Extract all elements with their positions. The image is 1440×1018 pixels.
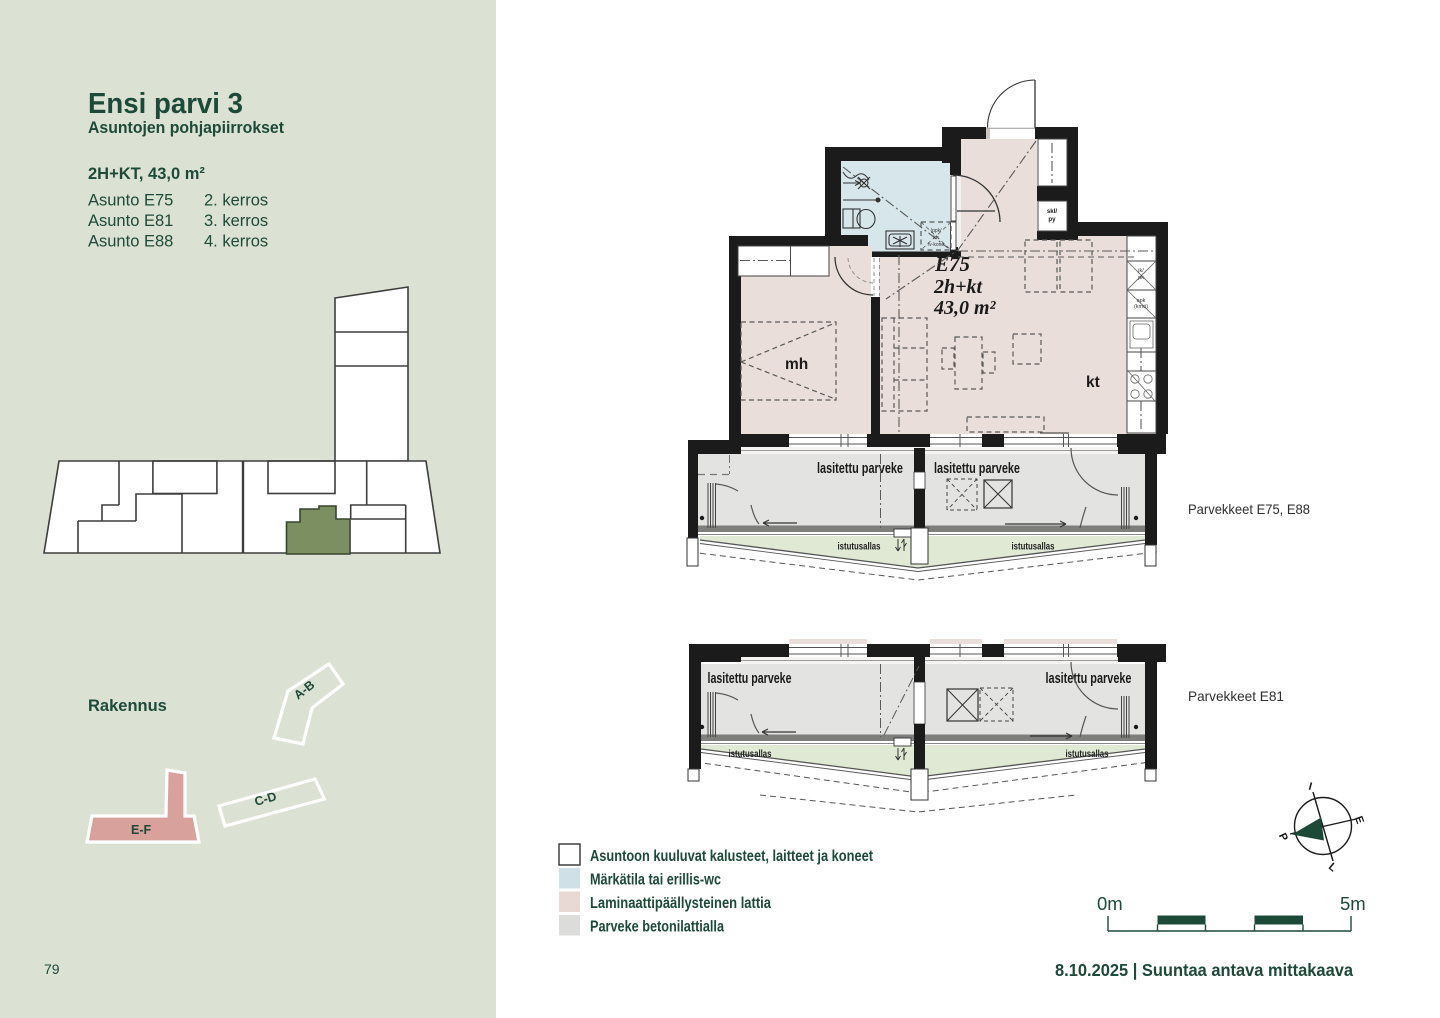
svg-text:istutusallas: istutusallas bbox=[1066, 749, 1109, 760]
svg-text:79: 79 bbox=[44, 961, 60, 977]
svg-text:(ppk/: (ppk/ bbox=[930, 228, 942, 234]
svg-text:kt: kt bbox=[1086, 374, 1100, 391]
svg-text:3. kerros: 3. kerros bbox=[204, 212, 268, 230]
svg-text:lasitettu parveke: lasitettu parveke bbox=[817, 461, 903, 477]
svg-text:Asunto E88: Asunto E88 bbox=[88, 233, 173, 251]
svg-text:0m: 0m bbox=[1097, 893, 1123, 914]
svg-text:py: py bbox=[1048, 216, 1056, 223]
svg-text:43,0 m²: 43,0 m² bbox=[933, 297, 997, 319]
svg-text:istutusallas: istutusallas bbox=[838, 542, 881, 553]
svg-text:E-F: E-F bbox=[131, 823, 152, 837]
svg-text:lasitettu parveke: lasitettu parveke bbox=[708, 671, 792, 687]
svg-text:Asuntojen pohjapiirrokset: Asuntojen pohjapiirrokset bbox=[88, 119, 284, 137]
svg-text:Asunto E81: Asunto E81 bbox=[88, 212, 173, 230]
svg-text:Märkätila tai erillis-wc: Märkätila tai erillis-wc bbox=[590, 872, 721, 889]
svg-text:lasitettu parveke: lasitettu parveke bbox=[1046, 671, 1132, 687]
svg-text:Parvekkeet E81: Parvekkeet E81 bbox=[1188, 688, 1284, 704]
svg-text:skl/: skl/ bbox=[1047, 208, 1058, 215]
svg-text:4. kerros: 4. kerros bbox=[204, 233, 268, 251]
svg-text:kh: kh bbox=[933, 235, 939, 241]
svg-text:istutusallas: istutusallas bbox=[729, 749, 772, 760]
svg-text:(kmö): (kmö) bbox=[1134, 304, 1148, 310]
svg-text:istutusallas: istutusallas bbox=[1012, 542, 1055, 553]
svg-text:8.10.2025 | Suuntaa antava mit: 8.10.2025 | Suuntaa antava mittakaava bbox=[1055, 960, 1353, 980]
svg-text:Rakennus: Rakennus bbox=[88, 697, 167, 715]
svg-text:Asunto E75: Asunto E75 bbox=[88, 192, 173, 210]
svg-text:2h+kt: 2h+kt bbox=[933, 276, 984, 298]
svg-text:/v-kone: /v-kone bbox=[928, 242, 945, 248]
svg-text:Ensi parvi 3: Ensi parvi 3 bbox=[88, 88, 243, 120]
svg-text:Laminaattipäällysteinen lattia: Laminaattipäällysteinen lattia bbox=[590, 895, 771, 912]
svg-text:Parvekkeet E75, E88: Parvekkeet E75, E88 bbox=[1188, 501, 1310, 517]
svg-text:jk/: jk/ bbox=[1137, 268, 1144, 274]
svg-text:E75: E75 bbox=[934, 252, 970, 276]
svg-text:mh: mh bbox=[785, 356, 808, 373]
svg-text:5m: 5m bbox=[1340, 893, 1366, 914]
svg-text:lasitettu parveke: lasitettu parveke bbox=[934, 461, 1020, 477]
svg-text:pk: pk bbox=[1138, 275, 1144, 281]
svg-text:Asuntoon kuuluvat kalusteet, l: Asuntoon kuuluvat kalusteet, laitteet ja… bbox=[590, 848, 873, 865]
svg-text:2. kerros: 2. kerros bbox=[204, 192, 268, 210]
svg-text:2H+KT, 43,0 m²: 2H+KT, 43,0 m² bbox=[88, 165, 205, 183]
svg-text:Parveke betonilattialla: Parveke betonilattialla bbox=[590, 919, 724, 936]
